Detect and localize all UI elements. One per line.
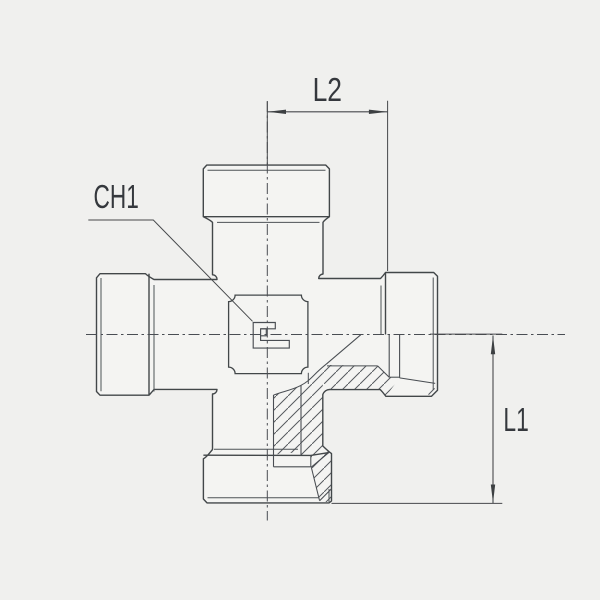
svg-text:CH1: CH1 xyxy=(94,178,139,215)
svg-text:L1: L1 xyxy=(503,401,528,438)
svg-text:L2: L2 xyxy=(313,71,342,108)
